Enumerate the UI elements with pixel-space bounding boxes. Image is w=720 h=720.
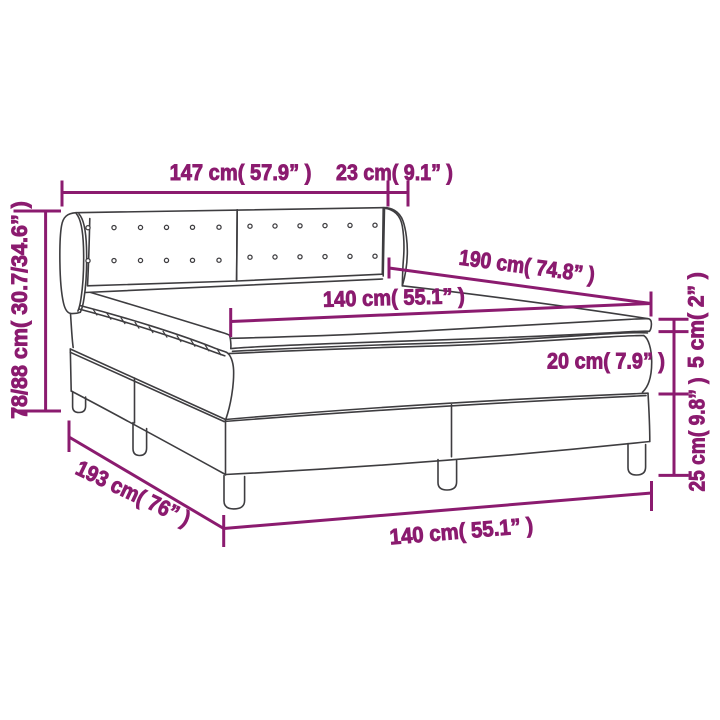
svg-text:193 cm( 76” ): 193 cm( 76” )	[72, 456, 194, 531]
svg-text:140 cm( 55.1” ): 140 cm( 55.1” )	[389, 514, 534, 550]
svg-text:25 cm( 9.8” ): 25 cm( 9.8” )	[685, 377, 710, 491]
svg-text:140 cm( 55.1” ): 140 cm( 55.1” )	[323, 284, 465, 312]
svg-text:23 cm( 9.1” ): 23 cm( 9.1” )	[336, 161, 453, 185]
svg-text:20 cm( 7.9” ): 20 cm( 7.9” )	[547, 350, 665, 374]
svg-text:147 cm( 57.9” ): 147 cm( 57.9” )	[170, 161, 312, 185]
svg-text:78/88 cm( 30.7/34.6” ): 78/88 cm( 30.7/34.6” )	[7, 201, 32, 419]
svg-text:5 cm( 2” ): 5 cm( 2” )	[684, 272, 709, 368]
